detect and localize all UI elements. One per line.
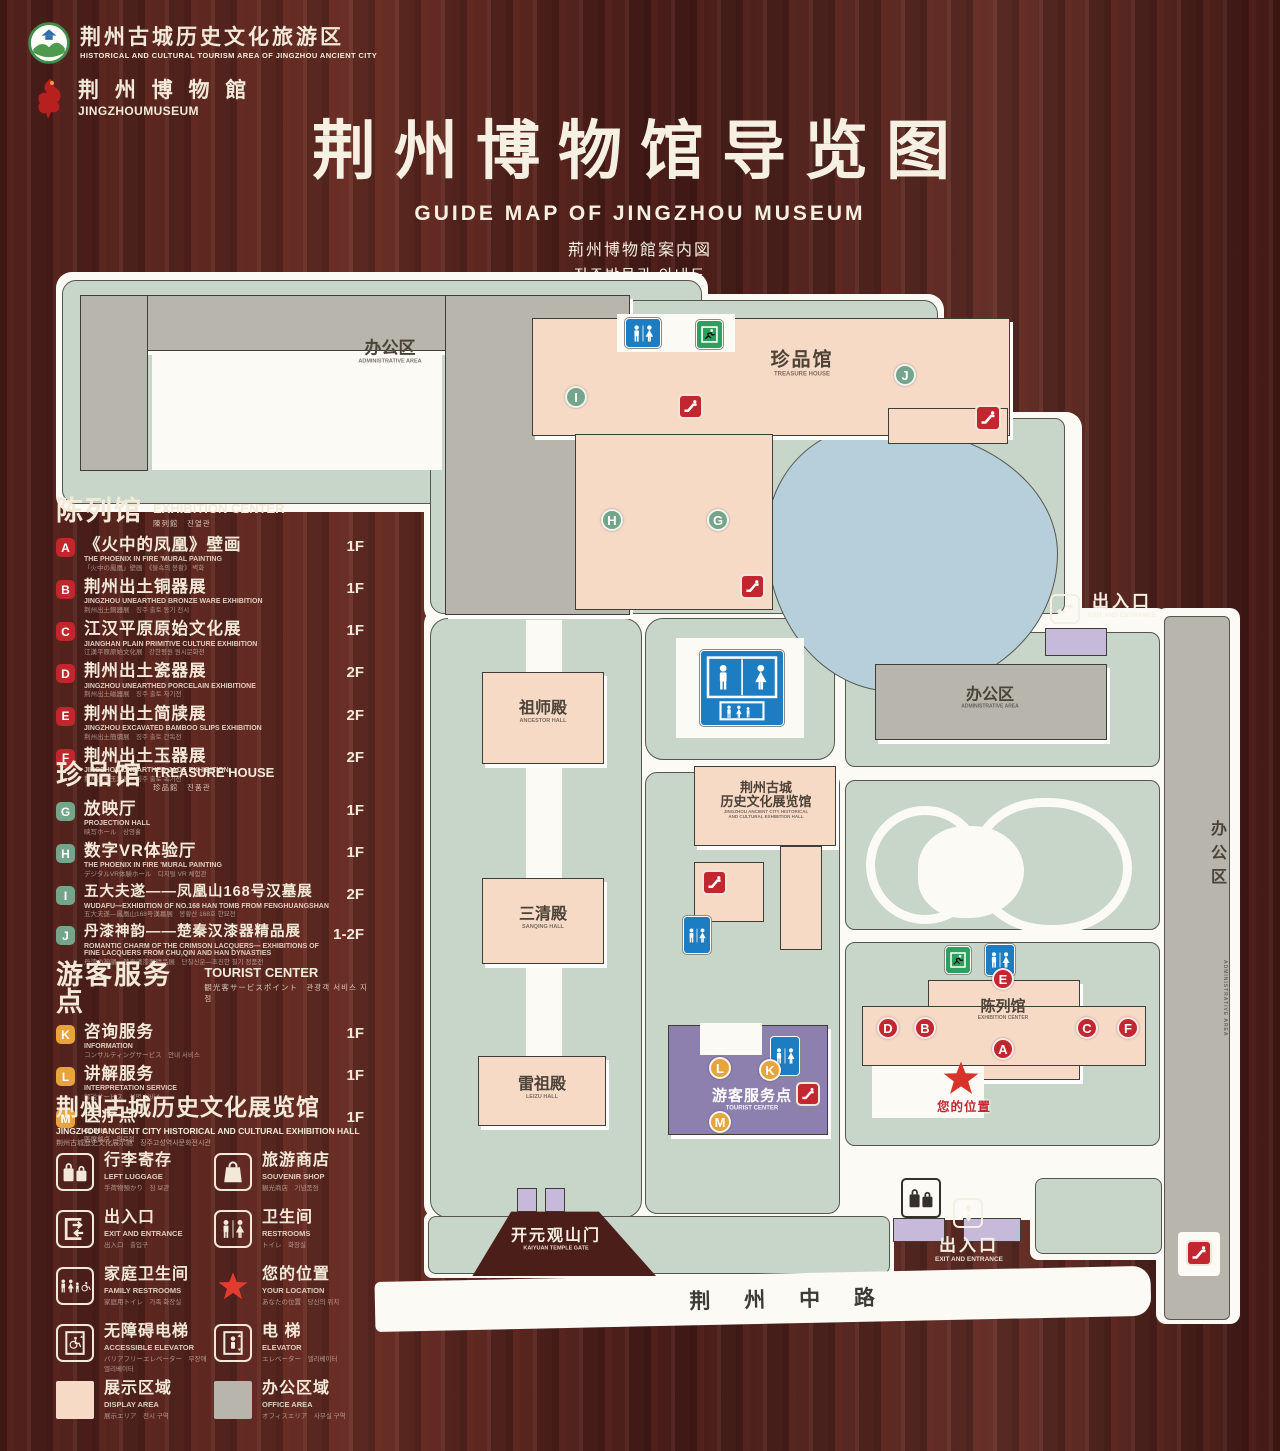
label-your-location: 您的位置 bbox=[937, 1096, 991, 1115]
accessible-elevator-icon bbox=[56, 1324, 94, 1362]
marker-j: J bbox=[894, 364, 916, 386]
facility-family-restrooms: 家庭卫生间 FAMILY RESTROOMS 家庭用トイレ 가족 화장실 bbox=[56, 1267, 214, 1324]
page-title: 荆州博物馆导览图 bbox=[0, 100, 1280, 192]
marker-g: G bbox=[707, 509, 729, 531]
label-admin-west: 办公区 ADMINISTRATIVE AREA bbox=[358, 340, 421, 365]
your-location-star bbox=[942, 1060, 980, 1096]
badge-e: E bbox=[56, 707, 75, 726]
guide-map-page: 荆州古城历史文化旅游区 HISTORICAL AND CULTURAL TOUR… bbox=[0, 0, 1280, 1451]
gate-pillar bbox=[517, 1188, 537, 1212]
facility-restrooms: 卫生间 RESTROOMS トイレ 화장실 bbox=[214, 1210, 368, 1267]
legend-item-h: H 数字VR体验厅 THE PHOENIX IN FIRE 'MURAL PAI… bbox=[56, 843, 368, 878]
floor-d: 2F bbox=[346, 664, 364, 681]
your-location-star-icon bbox=[214, 1267, 252, 1305]
restroom-family-icon bbox=[700, 650, 784, 726]
facility-left-luggage: 行李寄存 LEFT LUGGAGE 手荷物預かり 짐 보관 bbox=[56, 1153, 214, 1210]
legend-item-b: B 荆州出土铜器展 JINGZHOU UNEARTHED BRONZE WARE… bbox=[56, 579, 368, 614]
legend-tourist-header: 游客服务点 TOURIST CENTER 観光客サービスポイント 관광객 서비스… bbox=[56, 962, 368, 1016]
escalator-icon bbox=[702, 870, 727, 895]
tourism-area-brand: 荆州古城历史文化旅游区 HISTORICAL AND CULTURAL TOUR… bbox=[28, 22, 377, 64]
family-restrooms-icon bbox=[56, 1267, 94, 1305]
restroom-icon bbox=[683, 916, 711, 954]
label-sanqing-hall: 三清殿 SANQING HALL bbox=[519, 906, 567, 930]
legend-tourist-title: 游客服务点 bbox=[56, 962, 194, 1016]
badge-j: J bbox=[56, 926, 75, 945]
legend-treasure-header: 珍品馆 TREASURE HOUSE 珍品館 진품관 bbox=[56, 762, 368, 793]
floor-h: 1F bbox=[346, 844, 364, 861]
page-title-en: GUIDE MAP OF JINGZHOU MUSEUM bbox=[0, 202, 1280, 226]
walkway bbox=[526, 620, 562, 676]
label-admin-east: 办公区 ADMINISTRATIVE AREA bbox=[961, 686, 1019, 709]
gate-pillar bbox=[545, 1188, 565, 1212]
marker-k: K bbox=[759, 1059, 781, 1081]
floor-a: 1F bbox=[346, 538, 364, 555]
badge-a: A bbox=[56, 538, 75, 557]
exit-icon bbox=[945, 946, 971, 974]
label-tourist-center: 游客服务点 TOURIST CENTER bbox=[712, 1088, 792, 1111]
label-admin-strip: 办公区 bbox=[1166, 820, 1228, 892]
floor-e: 2F bbox=[346, 707, 364, 724]
badge-c: C bbox=[56, 622, 75, 641]
exit-entrance-icon bbox=[1050, 594, 1080, 624]
souvenir-shop-icon bbox=[214, 1153, 252, 1191]
legend-exhibition-title: 陈列馆 bbox=[56, 498, 143, 525]
road-label: 荆 州 中 路 bbox=[689, 1281, 889, 1315]
tourist-center-notch bbox=[700, 1023, 762, 1055]
marker-m: M bbox=[709, 1111, 731, 1133]
tourism-area-name: 荆州古城历史文化旅游区 bbox=[80, 27, 377, 48]
floor-k: 1F bbox=[346, 1025, 364, 1042]
marker-i: I bbox=[565, 386, 587, 408]
badge-h: H bbox=[56, 844, 75, 863]
floor-l: 1F bbox=[346, 1067, 364, 1084]
escalator-icon bbox=[796, 1082, 820, 1106]
building-admin-west-wing bbox=[80, 295, 148, 471]
marker-c: C bbox=[1076, 1017, 1098, 1039]
label-exhibition-hall: 荆州古城 历史文化展览馆 JINGZHOU ANCIENT CITY HISTO… bbox=[720, 781, 811, 819]
facility-souvenir-shop: 旅游商店 SOUVENIR SHOP 観光商店 기념품점 bbox=[214, 1153, 368, 1210]
building-lavender-north bbox=[1045, 628, 1107, 656]
floor-c: 1F bbox=[346, 622, 364, 639]
label-gate: 开元观山门 KAIYUAN TEMPLE GATE bbox=[511, 1228, 601, 1253]
floor-g: 1F bbox=[346, 802, 364, 819]
legend-item-d: D 荆州出土瓷器展 JINGZHOU UNEARTHED PORCELAIN E… bbox=[56, 663, 368, 698]
label-exit-top: 出入口 EXIT AND ENTRANCE bbox=[1088, 592, 1156, 619]
marker-e: E bbox=[992, 968, 1014, 990]
legend-item-a: A 《火中的凤凰》壁画 THE PHOENIX IN FIRE 'MURAL P… bbox=[56, 537, 368, 572]
title-block: 荆州博物馆导览图 GUIDE MAP OF JINGZHOU MUSEUM 荊州… bbox=[0, 100, 1280, 285]
legend-item-g: G 放映厅 PROJECTION HALL 映写ホール 상영홀 1F bbox=[56, 801, 368, 836]
legend-item-i: I 五大夫遂——凤凰山168号汉墓展 WUDAFU—EXHIBITION OF … bbox=[56, 885, 368, 918]
badge-b: B bbox=[56, 580, 75, 599]
exit-entrance-icon bbox=[953, 1198, 983, 1228]
museum-name: 荆 州 博 物 館 bbox=[78, 80, 251, 101]
marker-h: H bbox=[601, 509, 623, 531]
elevator-icon bbox=[214, 1324, 252, 1362]
display-area-swatch bbox=[56, 1381, 94, 1419]
label-treasure-house: 珍品馆 TREASURE HOUSE bbox=[770, 350, 833, 377]
marker-d: D bbox=[877, 1017, 899, 1039]
legend-item-e: E 荆州出土简牍展 JINGZHOU EXCAVATED BAMBOO SLIP… bbox=[56, 706, 368, 741]
floor-i: 2F bbox=[346, 886, 364, 903]
left-luggage-icon bbox=[56, 1153, 94, 1191]
legend-exhibition-header: 陈列馆 EXHIBITION CENTER 陳列館 진열관 bbox=[56, 498, 368, 529]
marker-l: L bbox=[709, 1057, 731, 1079]
badge-i: I bbox=[56, 886, 75, 905]
tourism-area-name-en: HISTORICAL AND CULTURAL TOURISM AREA OF … bbox=[80, 51, 377, 60]
floor-b: 1F bbox=[346, 580, 364, 597]
marker-a: A bbox=[992, 1038, 1014, 1060]
legend-hall-note: 荆州古城历史文化展览馆 JINGZHOU ANCIENT CITY HISTOR… bbox=[56, 1088, 368, 1148]
restroom-icon bbox=[625, 318, 661, 348]
left-luggage-icon bbox=[901, 1178, 941, 1218]
label-exit-bottom: 出入口 EXIT AND ENTRANCE bbox=[935, 1236, 1003, 1263]
badge-d: D bbox=[56, 664, 75, 683]
escalator-icon bbox=[975, 405, 1001, 431]
label-leizu-hall: 雷祖殿 LEIZU HALL bbox=[518, 1076, 566, 1100]
legend-facilities: 行李寄存 LEFT LUGGAGE 手荷物預かり 짐 보관 旅游商店 SOUVE… bbox=[56, 1153, 368, 1438]
escalator-icon bbox=[1186, 1240, 1212, 1266]
badge-g: G bbox=[56, 802, 75, 821]
restrooms-icon bbox=[214, 1210, 252, 1248]
exit-entrance-icon bbox=[56, 1210, 94, 1248]
escalator-icon bbox=[740, 574, 765, 599]
facility-office-area: 办公区域 OFFICE AREA オフィスエリア 사무실 구역 bbox=[214, 1381, 368, 1438]
facility-display-area: 展示区域 DISPLAY AREA 展示エリア 전시 구역 bbox=[56, 1381, 214, 1438]
building-exhibition-hall-arm bbox=[780, 846, 822, 950]
marker-b: B bbox=[914, 1017, 936, 1039]
badge-k: K bbox=[56, 1025, 75, 1044]
badge-l: L bbox=[56, 1067, 75, 1086]
legend-item-c: C 江汉平原原始文化展 JIANGHAN PLAIN PRIMITIVE CUL… bbox=[56, 621, 368, 656]
facility-accessible-elevator: 无障碍电梯 ACCESSIBLE ELEVATOR バリアフリーエレベーター 무… bbox=[56, 1324, 214, 1381]
escalator-icon bbox=[678, 394, 703, 419]
label-admin-strip-en: ADMINISTRATIVE AREA bbox=[1166, 960, 1228, 1037]
legend-item-k: K 咨询服务 INFORMATION コンサルティングサービス 안내 서비스 1… bbox=[56, 1024, 368, 1059]
land-southeast bbox=[1035, 1178, 1162, 1254]
marker-f: F bbox=[1117, 1017, 1139, 1039]
floor-j: 1-2F bbox=[333, 926, 364, 943]
facility-your-location: 您的位置 YOUR LOCATION あなたの位置 당신의 위치 bbox=[214, 1267, 368, 1324]
courtyard bbox=[152, 352, 442, 470]
office-area-swatch bbox=[214, 1381, 252, 1419]
facility-elevator: 电 梯 ELEVATOR エレベーター 엘리베이터 bbox=[214, 1324, 368, 1381]
label-exhibition-center: 陈列馆 EXHIBITION CENTER bbox=[978, 999, 1029, 1021]
label-ancestor-hall: 祖师殿 ANCESTOR HALL bbox=[519, 700, 567, 724]
legend-treasure-title: 珍品馆 bbox=[56, 762, 143, 789]
tourism-area-logo-icon bbox=[28, 22, 70, 64]
exit-icon bbox=[696, 320, 723, 349]
page-title-ja: 荊州博物館案内図 bbox=[0, 236, 1280, 260]
facility-exit-entrance: 出入口 EXIT AND ENTRANCE 出入口 출입구 bbox=[56, 1210, 214, 1267]
